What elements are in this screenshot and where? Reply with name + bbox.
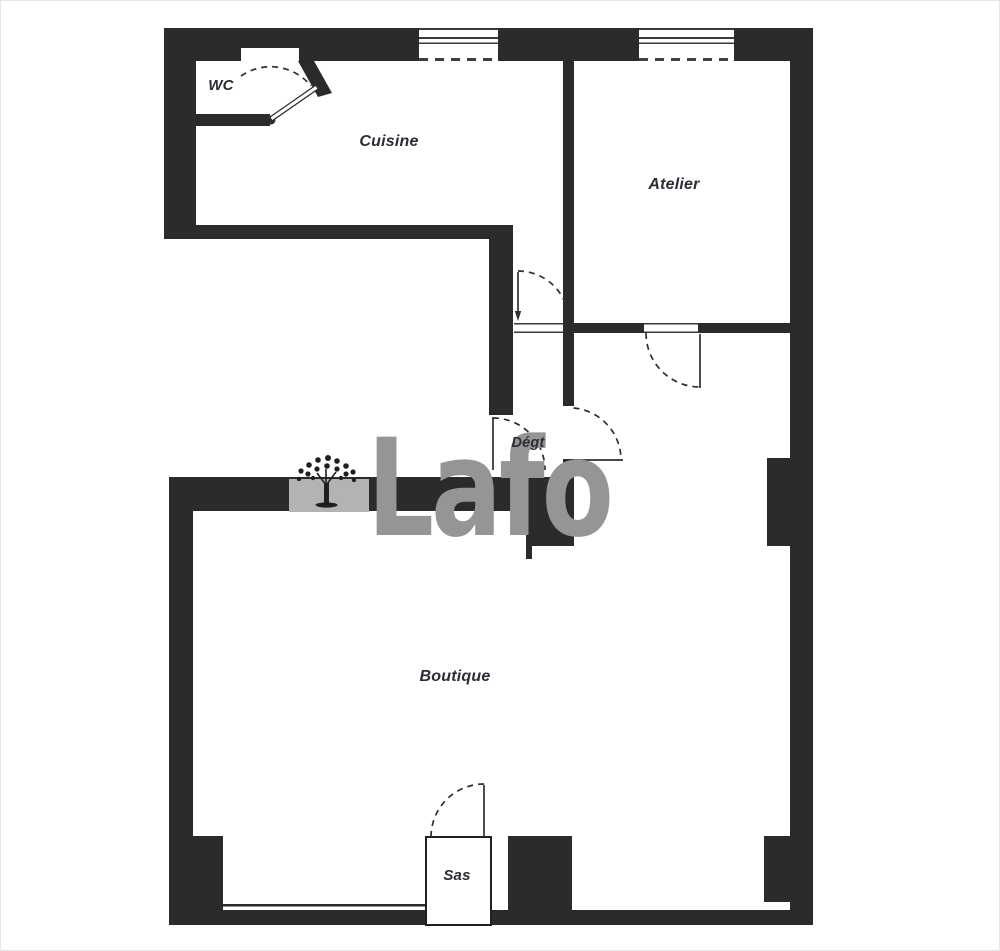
wall-right [790, 28, 813, 925]
walls [164, 28, 813, 925]
wall-left-lower [169, 477, 193, 925]
pillar-right-middle [767, 458, 790, 546]
room-label-sas: Sas [425, 867, 489, 884]
pillar-right-bottom [764, 836, 790, 902]
room-label-atelier: Atelier [624, 176, 724, 194]
wall-mid-vertical [489, 225, 513, 415]
atelier-door-swing-arc [646, 333, 700, 387]
wall-atelier-bottom-right [698, 323, 790, 333]
room-label-boutique: Boutique [405, 668, 505, 686]
floor-plan-drawing [1, 1, 1000, 951]
atelier-door-threshold [644, 323, 698, 325]
pillar-mid-bottom [508, 836, 572, 910]
room-label-wc: WC [191, 77, 251, 94]
wall-cuisine-bottom [164, 225, 489, 239]
wall-block-stub [526, 546, 532, 559]
sas-door-swing-arc [431, 784, 484, 837]
wc-door-leaf [270, 85, 319, 121]
wall-wc-bottom [193, 114, 270, 126]
window-atelier-opening [639, 28, 734, 61]
wall-left-upper [164, 28, 196, 239]
vestibule-door-swing-arc [518, 271, 566, 305]
floor-plan: Lafo WC Cuisine Atelier Dégt Boutique Sa… [0, 0, 1000, 951]
wall-cuisine-atelier-divider [563, 59, 574, 333]
wall-atelier-bottom-left [574, 323, 644, 333]
wall-block-below-top-wall [526, 511, 574, 546]
room-label-degagement: Dégt [496, 435, 560, 451]
pillar-left-bottom [193, 836, 223, 910]
vestibule-door-arrow [515, 311, 521, 321]
wall-corridor-right-upper [563, 333, 574, 406]
wc-wall-niche [241, 48, 299, 61]
wall-boutique-top [169, 477, 574, 511]
degagement-right-door-swing-arc [574, 408, 622, 460]
wall-bottom-inner-line [193, 904, 426, 907]
wc-door-swing-arc [241, 67, 311, 86]
vestibule-door-threshold [514, 323, 563, 325]
room-label-cuisine: Cuisine [339, 133, 439, 151]
window-cuisine-opening [419, 28, 498, 61]
